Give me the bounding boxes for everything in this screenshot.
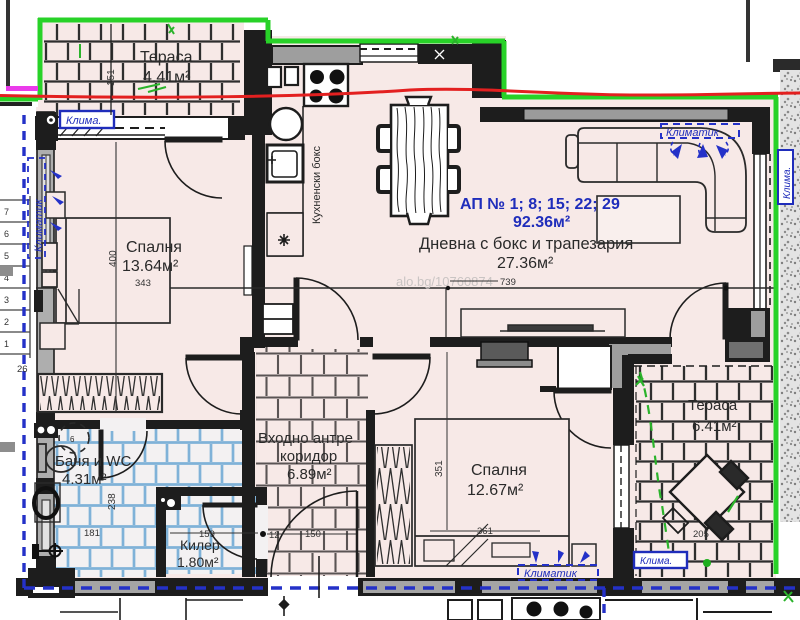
svg-text:92.36м²: 92.36м² <box>513 214 570 231</box>
svg-text:Тераса: Тераса <box>688 397 738 414</box>
svg-text:1: 1 <box>4 339 9 349</box>
svg-text:12.67м²: 12.67м² <box>467 482 524 499</box>
svg-text:Климатик: Климатик <box>524 568 578 580</box>
svg-text:7: 7 <box>4 207 9 217</box>
svg-text:12: 12 <box>269 530 280 541</box>
svg-text:Спалня: Спалня <box>471 462 527 479</box>
svg-text:Климатик: Климатик <box>33 198 45 252</box>
svg-text:Климатик: Климатик <box>666 127 720 139</box>
svg-text:13.64м²: 13.64м² <box>122 258 179 275</box>
svg-text:6: 6 <box>4 229 9 239</box>
svg-text:3: 3 <box>4 295 9 305</box>
svg-text:Спалня: Спалня <box>126 239 182 256</box>
svg-text:26: 26 <box>17 364 28 375</box>
svg-text:205: 205 <box>693 529 709 540</box>
svg-text:Дневна с бокс и трапезария: Дневна с бокс и трапезария <box>419 235 633 253</box>
svg-text:400: 400 <box>108 250 119 267</box>
svg-text:Тераса: Тераса <box>140 49 193 66</box>
svg-text:1.80м²: 1.80м² <box>177 554 219 570</box>
svg-text:5: 5 <box>4 251 9 261</box>
svg-text:238: 238 <box>107 493 118 510</box>
svg-text:АП № 1; 8; 15; 22; 29: АП № 1; 8; 15; 22; 29 <box>460 196 620 213</box>
svg-text:181: 181 <box>84 528 100 539</box>
svg-text:27.36м²: 27.36м² <box>497 255 554 272</box>
svg-text:Клима.: Клима. <box>640 556 672 567</box>
svg-text:6.89м²: 6.89м² <box>287 466 332 483</box>
svg-text:Входно антре: Входно антре <box>258 430 353 447</box>
svg-text:4.31м²: 4.31м² <box>62 471 107 488</box>
svg-text:151: 151 <box>106 69 117 86</box>
svg-text:6.41м²: 6.41м² <box>692 418 737 435</box>
svg-text:159: 159 <box>199 529 215 540</box>
svg-text:351: 351 <box>434 460 445 477</box>
svg-text:343: 343 <box>135 278 151 289</box>
svg-text:2: 2 <box>4 317 9 327</box>
svg-text:739: 739 <box>500 277 516 288</box>
svg-text:4.41м²: 4.41м² <box>143 69 191 86</box>
svg-text:Клима.: Клима. <box>66 115 102 127</box>
svg-text:Баня и WC: Баня и WC <box>55 453 131 470</box>
svg-text:6: 6 <box>70 435 75 444</box>
svg-text:Кухненски бокс: Кухненски бокс <box>311 145 323 224</box>
svg-text:коридор: коридор <box>280 448 337 465</box>
svg-text:Клима.: Клима. <box>782 167 793 199</box>
